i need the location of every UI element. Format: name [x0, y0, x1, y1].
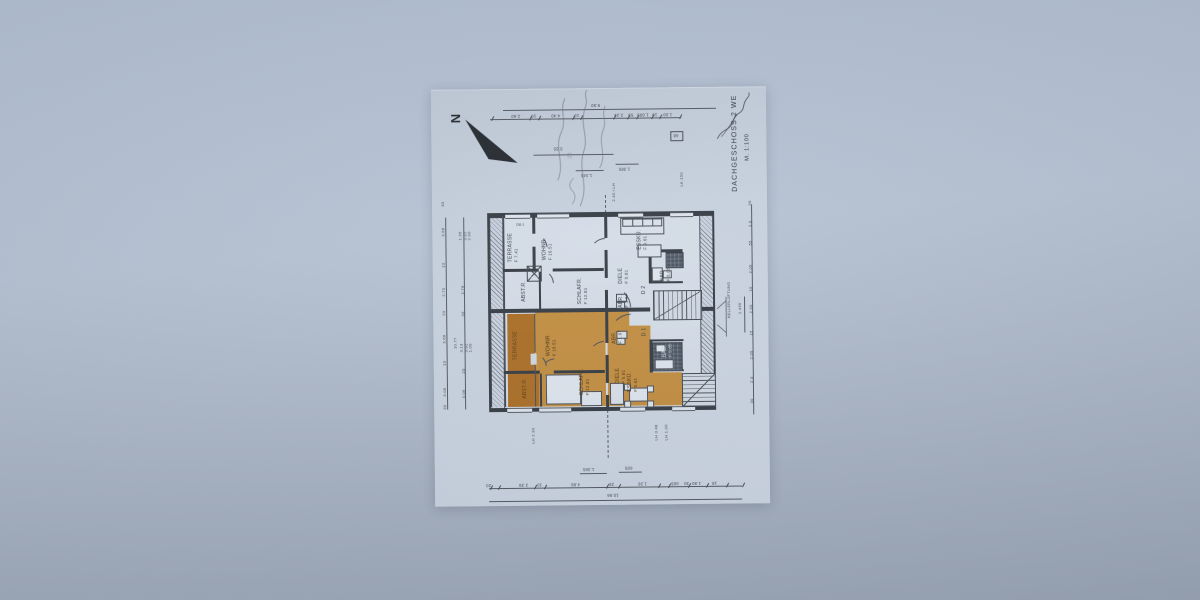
- photo-of-floorplan: TERRASSEF 7.41 WOHNR.F 16.51 ABST.R. SCH…: [0, 0, 1200, 600]
- label-abstellraum-lower: ABST.R.: [522, 378, 528, 399]
- dim-bottom: 1.90: [692, 481, 701, 486]
- pencil-scribble-4: [570, 178, 575, 204]
- north-label: N: [448, 113, 464, 123]
- label-abort-lower: ABR.F 1.97: [611, 330, 622, 344]
- label-esskueche-lower: ESSKÜ.F 9.61: [627, 372, 638, 392]
- staircase-upper: [653, 290, 702, 321]
- dim-bottom: 18: [712, 480, 717, 485]
- dim-top: 2.60: [511, 114, 520, 119]
- keller-leader-lines: [717, 297, 726, 337]
- dim-left-inner: 1.00: [468, 343, 473, 352]
- dim-left-inner: 20: [462, 368, 467, 373]
- pencil-note: 23: [567, 152, 573, 158]
- dim-1365: 1.365: [583, 467, 595, 472]
- staircase-lower: [682, 373, 716, 407]
- label-240-ilh: 2.40 i.LH: [612, 183, 617, 202]
- dim-bottom-total: 10.96: [607, 493, 619, 498]
- wall-apartment-separation-2: [700, 307, 715, 311]
- dim-left: 30: [441, 202, 446, 207]
- pencil-scribble-3: [599, 106, 606, 168]
- dim-bottom: 2.39: [519, 482, 528, 487]
- window-top-1: [505, 214, 530, 219]
- sheet-title: DACHGESCHOSS 2 WE: [731, 95, 740, 192]
- dim-left: 30: [443, 405, 448, 410]
- sheet-scale: M. 1:100: [744, 133, 751, 160]
- pencil-scribble-1: [557, 98, 566, 180]
- chair: [647, 385, 654, 392]
- stamp-db1: DB 1: [516, 223, 524, 227]
- dim-555: 5.55: [553, 146, 562, 151]
- tick: [679, 114, 682, 119]
- wall-corridor-b: [604, 250, 608, 278]
- wall-terrace-up-a: [532, 216, 535, 234]
- label-door-d1: D 1: [641, 328, 647, 337]
- dim-right: 2.05: [748, 264, 753, 273]
- section-line-upper: [434, 155, 765, 159]
- dim-right: 2.0: [748, 220, 753, 227]
- dim-left-inner: 2.76: [461, 285, 466, 294]
- label-lk150: LK 150: [680, 172, 685, 187]
- dim-right: 30: [750, 398, 755, 403]
- dim-left: 3.06: [443, 388, 448, 397]
- plan-sheet: TERRASSEF 7.41 WOHNR.F 16.51 ABST.R. SCH…: [431, 86, 770, 506]
- label-terrasse-lower: TERRASSE: [512, 331, 518, 360]
- dim-left: 10: [442, 263, 447, 268]
- dim-bottom: 605: [671, 481, 679, 486]
- dim-bottom: 10: [537, 482, 542, 487]
- dim-bottom: 25: [609, 481, 614, 486]
- section-line-lower: [437, 448, 768, 452]
- label-terrasse-upper: TERRASSEF 7.41: [507, 233, 518, 262]
- dim-line-1385: [616, 164, 639, 165]
- dim-left-inner: 30: [461, 311, 466, 316]
- dim-1345: 1.345: [581, 173, 593, 178]
- dim-right: 2.30: [749, 304, 754, 313]
- floorplan-drawing: TERRASSEF 7.41 WOHNR.F 16.51 ABST.R. SCH…: [431, 86, 770, 506]
- label-diele-upper: DIELEF 5.81: [618, 268, 629, 284]
- label-bad-lower: BADF 5.05: [661, 343, 672, 357]
- label-abort-upper: ABR.F 1.97: [618, 294, 629, 308]
- tick: [742, 483, 745, 488]
- dim-box-68-value: 68: [673, 133, 678, 138]
- dim-left-inner: 2.90: [467, 231, 472, 240]
- lower-kitchen-floor: [651, 372, 682, 405]
- wall-corridor-c: [604, 290, 608, 343]
- dim-line-top-total: [503, 107, 716, 110]
- bed-lower: [546, 374, 581, 404]
- dim-right: 15: [749, 330, 754, 335]
- label-kellerlueftung: KELLERLÜFTUNG: [727, 282, 732, 318]
- dim-line-1365: [580, 473, 607, 474]
- label-schlafraum-upper: SCHLAFR.F 12.81: [577, 277, 588, 304]
- label-wohnraum-upper: WOHNR.F 16.51: [541, 237, 552, 260]
- wall-corridor-d: [605, 355, 609, 383]
- pencil-scribble-2: [579, 90, 588, 206]
- dim-right: 2.0: [749, 376, 754, 383]
- dim-line-bottom-total: [489, 498, 742, 502]
- label-abstellraum-upper: ABST.R.: [521, 281, 527, 302]
- dim-right: 30: [748, 200, 753, 205]
- dim-top: 1.00: [663, 112, 672, 117]
- window-top-4: [670, 212, 693, 217]
- window-bottom-2: [539, 408, 571, 413]
- dim-left: 20: [442, 311, 447, 316]
- label-door-d2: D 2: [641, 286, 647, 295]
- dim-top: 4.40: [551, 113, 560, 118]
- dim-line-right-bracket: [744, 296, 745, 332]
- dim-left: 10: [443, 361, 448, 366]
- label-lh348: LH 3.48: [654, 424, 659, 440]
- label-lh100: LH 1.00: [664, 424, 669, 440]
- dim-bottom: 4.86: [571, 482, 580, 487]
- kitchen-counter-lower: [610, 383, 624, 405]
- chair: [647, 400, 654, 407]
- dim-left: 3.68: [442, 335, 447, 344]
- wall-corridor-a: [604, 215, 608, 238]
- dim-top-total: 9.50: [591, 102, 600, 107]
- wall-corridor-e: [606, 395, 610, 407]
- window-top-2: [537, 213, 569, 218]
- dim-left: 2.75: [442, 288, 447, 297]
- lower-terrasse-floor: [507, 314, 535, 374]
- label-esskueche-upper: ESSKÜ.F 9.61: [636, 230, 647, 250]
- wall-abst-low: [539, 374, 542, 407]
- chair: [624, 401, 631, 408]
- dim-box-68: 68: [670, 131, 683, 141]
- bathtub-lower: [655, 359, 674, 369]
- dim-left: 3.68: [441, 228, 446, 237]
- dim-1385: 1.385: [619, 166, 631, 171]
- dim-right: 2.05: [749, 350, 754, 359]
- dim-right: 55: [748, 240, 753, 245]
- label-lh230: LH 2.30: [531, 428, 536, 444]
- dim-bottom: 1.26: [638, 481, 647, 486]
- label-schlafraum-lower: SCHLAFR.F 12.81: [579, 368, 590, 395]
- dim-line-1345: [576, 170, 604, 171]
- dim-left-inner: 3.06: [462, 389, 467, 398]
- kitchen-unit: [652, 218, 662, 226]
- label-bad-upper: BADF 5.05: [660, 267, 671, 281]
- dim-605: 605: [625, 465, 633, 470]
- dim-line-605: [619, 472, 642, 473]
- bad-upper-tiles: [666, 252, 684, 268]
- dim-right: 15: [748, 286, 753, 291]
- label-diele-lower: DIELEF 5.81: [615, 368, 626, 384]
- dim-right-bracket: 2.465: [738, 303, 743, 315]
- label-wohnraum-lower: WOHNR.F 16.51: [545, 333, 556, 356]
- window-bottom-1: [507, 408, 532, 413]
- wall-upper-rooms-b: [553, 268, 604, 271]
